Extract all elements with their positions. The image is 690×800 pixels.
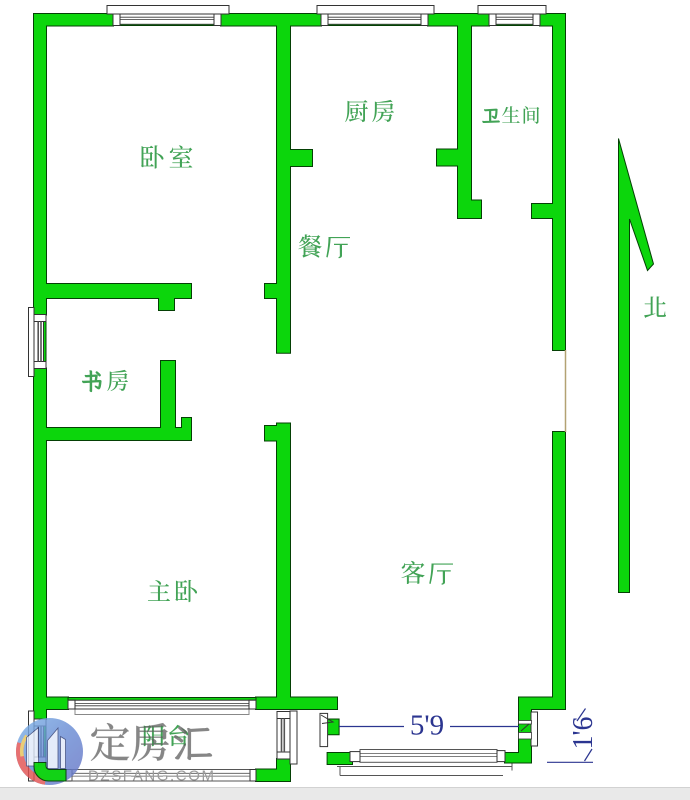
svg-text:5'9: 5'9 — [410, 710, 444, 742]
svg-text:DZSFANG.COM: DZSFANG.COM — [88, 768, 216, 785]
svg-text:1'6: 1'6 — [568, 716, 599, 749]
